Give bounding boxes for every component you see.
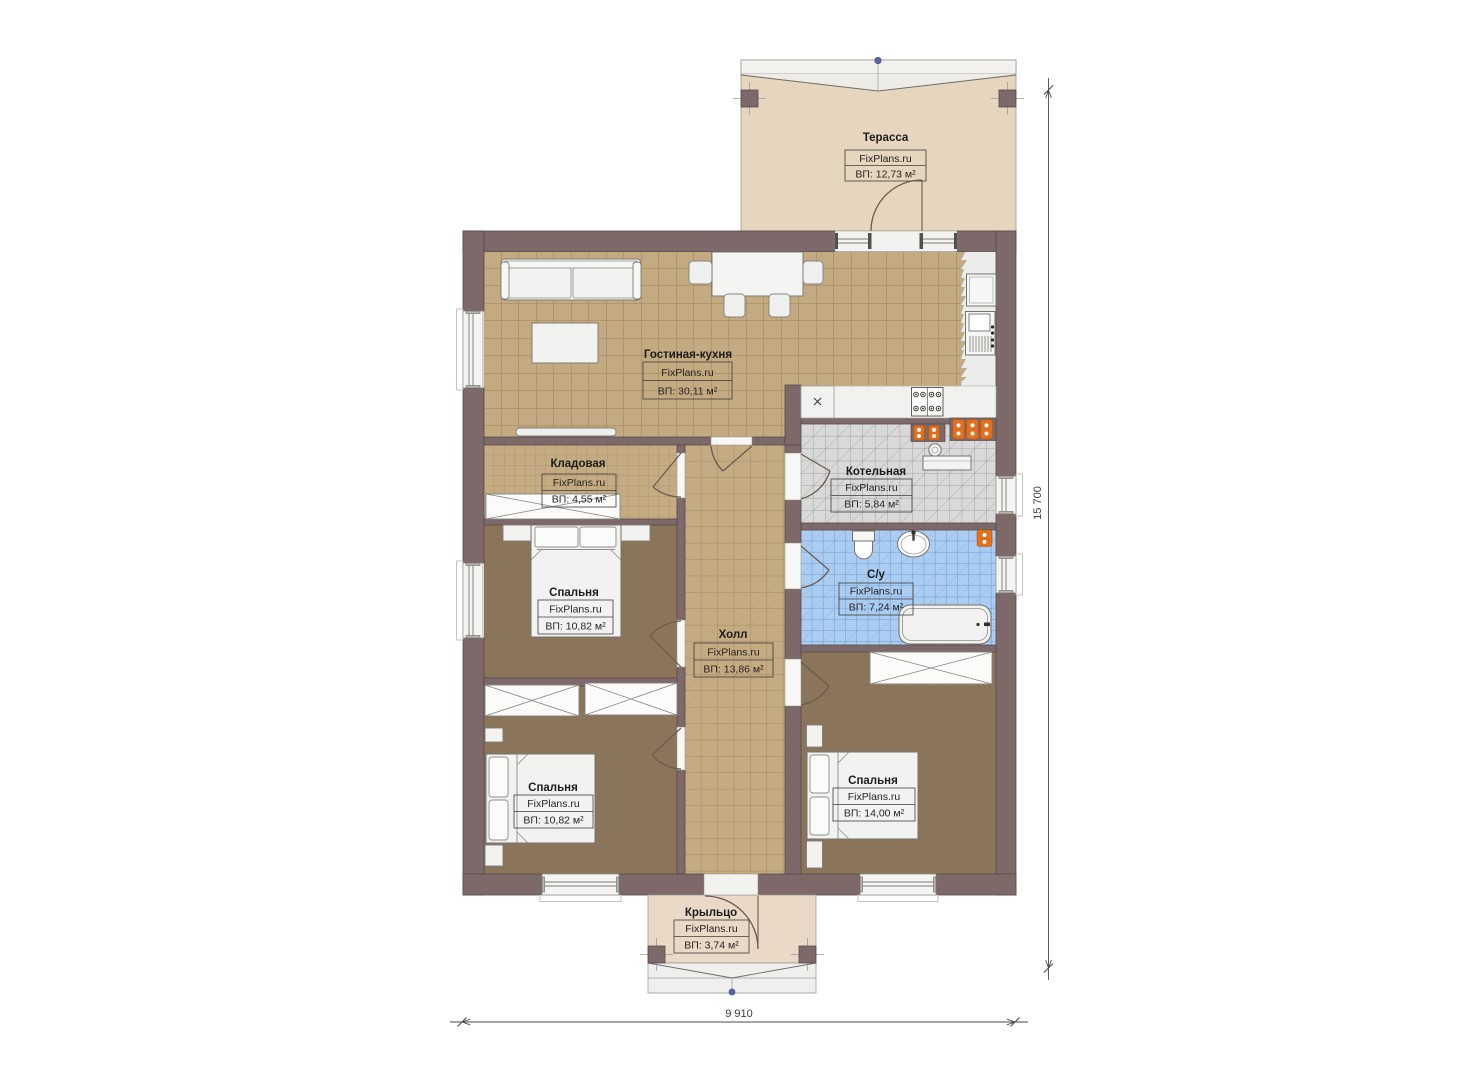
- svg-text:15 700: 15 700: [1032, 486, 1044, 520]
- svg-text:FixPlans.ru: FixPlans.ru: [848, 791, 901, 803]
- svg-text:9 910: 9 910: [725, 1008, 753, 1020]
- svg-text:Терасса: Терасса: [863, 132, 909, 144]
- svg-text:Спальня: Спальня: [848, 775, 898, 787]
- svg-text:ВП: 4,55 м²: ВП: 4,55 м²: [552, 494, 607, 506]
- svg-text:FixPlans.ru: FixPlans.ru: [859, 153, 912, 165]
- svg-text:FixPlans.ru: FixPlans.ru: [850, 586, 903, 598]
- svg-text:Крыльцо: Крыльцо: [685, 907, 737, 919]
- svg-text:ВП: 10,82 м²: ВП: 10,82 м²: [545, 621, 606, 633]
- svg-text:FixPlans.ru: FixPlans.ru: [661, 367, 714, 379]
- svg-text:FixPlans.ru: FixPlans.ru: [553, 477, 606, 489]
- svg-text:С/у: С/у: [867, 569, 886, 581]
- svg-text:Спальня: Спальня: [528, 782, 578, 794]
- svg-text:FixPlans.ru: FixPlans.ru: [707, 647, 760, 659]
- svg-text:Кладовая: Кладовая: [550, 458, 605, 470]
- svg-text:Холл: Холл: [719, 629, 748, 641]
- svg-text:FixPlans.ru: FixPlans.ru: [685, 923, 738, 935]
- svg-text:FixPlans.ru: FixPlans.ru: [549, 604, 602, 616]
- svg-text:ВП: 7,24 м²: ВП: 7,24 м²: [849, 602, 904, 614]
- svg-text:ВП: 10,82 м²: ВП: 10,82 м²: [523, 815, 584, 827]
- svg-text:ВП: 5,84 м²: ВП: 5,84 м²: [844, 499, 899, 511]
- svg-text:ВП: 30,11 м²: ВП: 30,11 м²: [658, 386, 718, 398]
- svg-text:Гостиная-кухня: Гостиная-кухня: [644, 349, 732, 361]
- svg-text:ВП: 14,00 м²: ВП: 14,00 м²: [844, 808, 905, 820]
- svg-text:Котельная: Котельная: [846, 466, 906, 478]
- svg-text:Спальня: Спальня: [549, 587, 599, 599]
- svg-text:ВП: 12,73 м²: ВП: 12,73 м²: [855, 169, 916, 181]
- svg-text:ВП: 3,74 м²: ВП: 3,74 м²: [684, 940, 739, 952]
- svg-text:ВП: 13,86 м²: ВП: 13,86 м²: [703, 664, 764, 676]
- svg-text:FixPlans.ru: FixPlans.ru: [845, 482, 898, 494]
- svg-text:FixPlans.ru: FixPlans.ru: [527, 798, 580, 810]
